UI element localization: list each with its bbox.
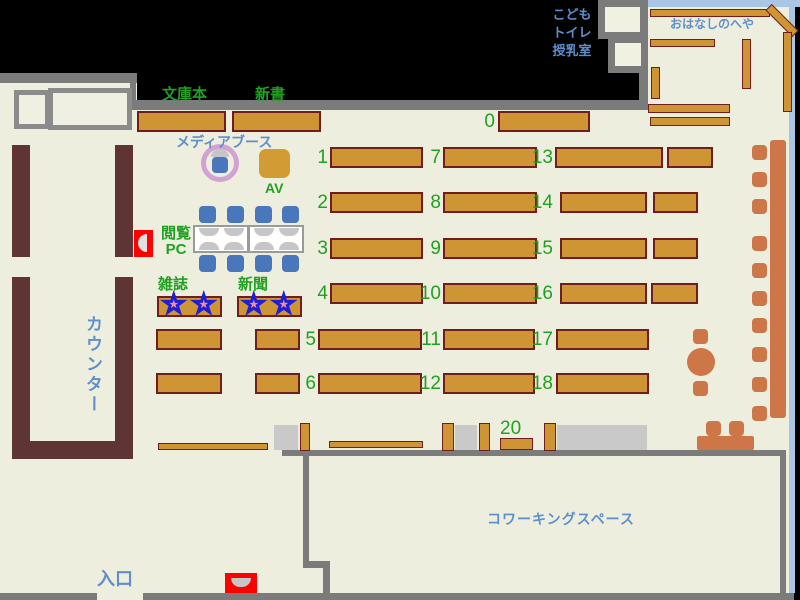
stool <box>752 291 767 306</box>
nursing-room <box>608 36 648 73</box>
reading-bench-long <box>770 140 786 418</box>
pc-station <box>224 242 244 250</box>
story-room-shelf-bottom-2 <box>650 117 730 126</box>
shelf-small-vert <box>479 423 490 451</box>
wall-coworking-left <box>303 456 309 564</box>
wall-coworking-right <box>780 456 786 594</box>
pc-chair <box>282 206 299 223</box>
counter-bar-upper-left <box>12 145 30 257</box>
story-room-shelf-right-vert <box>783 32 792 112</box>
shelf-number-1: 1 <box>303 147 328 168</box>
shelf-9 <box>443 238 537 259</box>
shelf-number-2: 2 <box>303 192 328 213</box>
security-gate-counter <box>134 230 153 257</box>
shelf-15 <box>560 238 647 259</box>
shelf-number-7: 7 <box>416 147 441 168</box>
shelf-number-4: 4 <box>303 283 328 304</box>
stool <box>752 347 767 362</box>
label-entrance: 入口 <box>97 570 133 590</box>
star-icon: ★ <box>193 292 215 318</box>
shelf-16-ext <box>651 283 698 304</box>
stool <box>752 236 767 251</box>
shelf-number-14: 14 <box>528 192 553 213</box>
shelf-14 <box>560 192 647 213</box>
story-room-shelf-mid-vert <box>742 39 751 89</box>
stool <box>706 421 721 436</box>
shelf-16 <box>560 283 647 304</box>
shelf-bunkobon <box>137 111 226 132</box>
stool <box>752 406 767 421</box>
shelf-4 <box>330 283 423 304</box>
shelf-15-ext <box>653 238 698 259</box>
shelf-shinsho <box>232 111 321 132</box>
shelf-11 <box>443 329 535 350</box>
star-icon: ★ <box>273 292 295 318</box>
pc-chair <box>199 255 216 272</box>
label-reading-pc: 閲覧 PC <box>160 226 192 258</box>
shelf-number-20: 20 <box>500 418 530 439</box>
stool <box>752 199 767 214</box>
shelf-13 <box>555 147 663 168</box>
label-magazines: 雑誌 <box>158 277 188 293</box>
shelf-number-0: 0 <box>470 111 495 132</box>
shelf-small-vert <box>300 423 310 451</box>
label-kids: こども <box>542 8 602 22</box>
label-coworking: コワーキングスペース <box>487 512 635 527</box>
shelf-number-13: 13 <box>528 147 553 168</box>
library-floor-map: ★ ★ ★ ★ <box>0 0 800 600</box>
media-booth-seat <box>212 157 228 173</box>
shelf-3 <box>330 238 423 259</box>
label-newspapers: 新聞 <box>238 277 268 293</box>
backoffice-table-small <box>14 90 50 129</box>
wall-bottom-right <box>143 593 794 600</box>
shelf-number-15: 15 <box>528 238 553 259</box>
shelf-number-16: 16 <box>528 283 553 304</box>
wall-coworking-top <box>282 450 786 456</box>
stool <box>752 145 767 160</box>
pc-station <box>254 242 274 250</box>
shelf-number-8: 8 <box>416 192 441 213</box>
label-toilet: トイレ <box>542 26 602 40</box>
pc-station <box>199 242 219 250</box>
work-table-long <box>557 425 647 450</box>
wall-bottom-left <box>0 593 97 600</box>
pc-chair <box>255 206 272 223</box>
shelf-number-12: 12 <box>416 373 441 394</box>
label-reading-pc-line1: 閲覧 <box>161 225 191 242</box>
shelf-row5-left <box>156 329 222 350</box>
gate-sensor-icon <box>231 578 251 587</box>
bench <box>697 436 754 450</box>
pc-station <box>279 242 299 250</box>
label-shinsho: 新書 <box>255 87 285 103</box>
counter-bar-lower-right <box>115 277 133 459</box>
shelf-8 <box>443 192 537 213</box>
label-counter: カウンター <box>80 315 105 415</box>
wall-coworking-jog-h <box>303 561 330 568</box>
gate-sensor-icon <box>138 234 147 252</box>
story-room-shelf-top <box>650 9 770 17</box>
label-av: AV <box>265 181 283 196</box>
shelf-7 <box>443 147 537 168</box>
shelf-number-5: 5 <box>291 329 316 350</box>
shelf-small-vert <box>442 423 454 451</box>
stool <box>729 421 744 436</box>
backoffice-table-large <box>48 88 132 130</box>
shelf-long-thin-left <box>158 443 268 450</box>
shelf-long-thin-right <box>329 441 423 448</box>
shelf-20 <box>500 438 533 450</box>
pc-chair <box>227 206 244 223</box>
shelf-18 <box>556 373 649 394</box>
shelf-6 <box>318 373 422 394</box>
shelf-0 <box>498 111 590 132</box>
stool <box>752 263 767 278</box>
shelf-10 <box>443 283 537 304</box>
pc-chair <box>227 255 244 272</box>
av-booth <box>259 149 290 178</box>
label-media-booth: メディアブース <box>176 135 272 150</box>
round-table <box>687 348 715 376</box>
label-reading-pc-line2: PC <box>166 241 187 258</box>
floor-entrance-gap <box>97 593 143 600</box>
counter-bar-upper-right <box>115 145 133 257</box>
shelf-number-3: 3 <box>303 238 328 259</box>
stool <box>752 172 767 187</box>
work-table <box>455 425 477 450</box>
shelf-number-9: 9 <box>416 238 441 259</box>
story-room-border-top <box>648 0 800 7</box>
star-icon: ★ <box>243 292 265 318</box>
pc-chair <box>282 255 299 272</box>
shelf-1 <box>330 147 423 168</box>
stool <box>693 329 708 344</box>
shelf-12 <box>443 373 535 394</box>
story-room-shelf-left-vert <box>651 67 660 99</box>
wall-top-main <box>130 100 648 110</box>
shelf-14-ext <box>653 192 698 213</box>
shelf-5 <box>318 329 422 350</box>
shelf-number-18: 18 <box>528 373 553 394</box>
label-story-room: おはなしのへや <box>670 18 754 31</box>
story-room-shelf-2 <box>650 39 715 47</box>
wall-top-left <box>0 73 137 83</box>
shelf-number-6: 6 <box>291 373 316 394</box>
wall-coworking-jog-v <box>323 568 330 594</box>
stool <box>693 381 708 396</box>
shelf-17 <box>556 329 649 350</box>
star-icon: ★ <box>163 292 185 318</box>
shelf-13-ext <box>667 147 713 168</box>
story-room-shelf-bottom-1 <box>648 104 730 113</box>
shelf-number-10: 10 <box>416 283 441 304</box>
shelf-2 <box>330 192 423 213</box>
label-bunkobon: 文庫本 <box>162 87 207 103</box>
pc-chair <box>255 255 272 272</box>
pc-chair <box>199 206 216 223</box>
work-table <box>274 425 298 450</box>
counter-bar-lower-left <box>12 277 30 459</box>
label-nursing-room: 授乳室 <box>540 44 604 58</box>
kids-toilet-room <box>598 0 647 39</box>
counter-bar-bottom <box>12 441 133 459</box>
shelf-small-vert <box>544 423 556 451</box>
shelf-number-17: 17 <box>528 329 553 350</box>
stool <box>752 377 767 392</box>
shelf-row6-left <box>156 373 222 394</box>
shelf-number-11: 11 <box>416 329 441 350</box>
security-gate-entrance <box>225 573 257 593</box>
stool <box>752 318 767 333</box>
